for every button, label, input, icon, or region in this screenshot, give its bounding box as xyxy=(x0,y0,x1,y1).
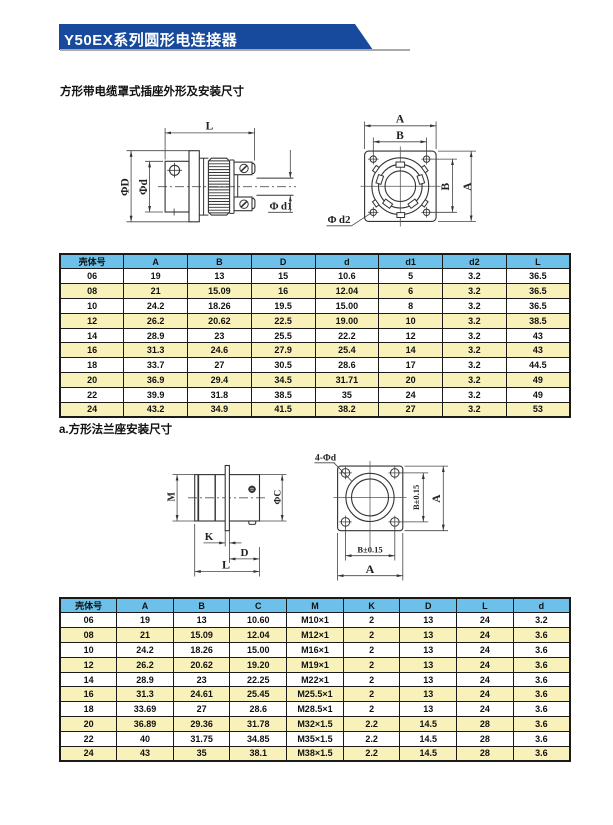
svg-text:L: L xyxy=(206,121,214,133)
svg-text:A: A xyxy=(396,114,405,126)
svg-text:B±0.15: B±0.15 xyxy=(357,545,382,555)
svg-text:A: A xyxy=(431,494,443,503)
svg-text:4-Φd: 4-Φd xyxy=(315,453,337,463)
svg-text:A: A xyxy=(462,182,474,191)
svg-text:K: K xyxy=(205,531,214,543)
svg-text:ΦC: ΦC xyxy=(273,490,283,505)
svg-text:ΦD: ΦD xyxy=(120,178,132,196)
svg-text:Φd: Φd xyxy=(138,178,150,195)
svg-text:M: M xyxy=(167,492,178,502)
svg-text:A: A xyxy=(366,562,375,576)
svg-text:Φ d1: Φ d1 xyxy=(270,201,293,213)
svg-text:D: D xyxy=(241,547,249,559)
svg-text:B±0.15: B±0.15 xyxy=(411,485,421,510)
svg-text:B: B xyxy=(440,183,452,191)
svg-text:B: B xyxy=(396,130,404,142)
svg-text:L: L xyxy=(222,558,230,572)
svg-text:Φ d2: Φ d2 xyxy=(328,214,351,226)
